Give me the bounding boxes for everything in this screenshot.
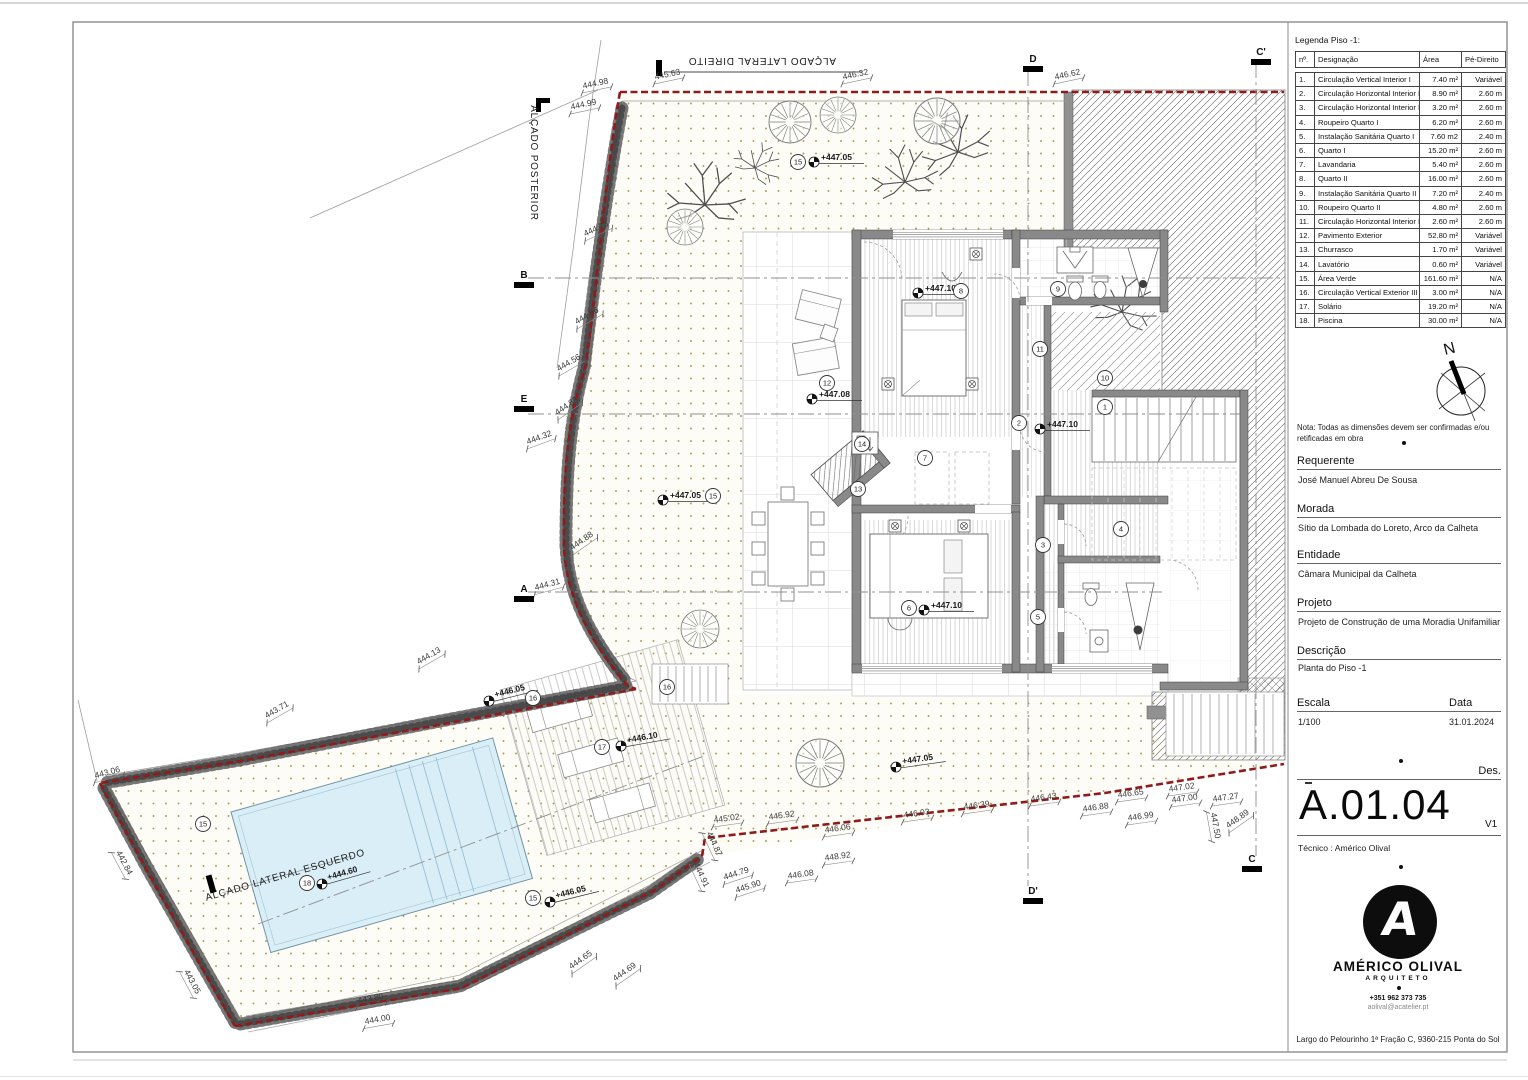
- rule: [1297, 779, 1501, 780]
- svg-text:+447.10: +447.10: [925, 283, 956, 293]
- dimension: 443.71: [259, 697, 296, 727]
- legend-row: 15.Área Verde161.60 m²N/A: [1295, 272, 1506, 286]
- data-label: Data: [1449, 697, 1472, 709]
- legend-header-area: Área: [1420, 51, 1462, 68]
- svg-text:3: 3: [1041, 541, 1045, 550]
- legend-cell: 4.80 m²: [1420, 201, 1462, 215]
- dimension: 446.88: [1078, 800, 1114, 820]
- legend-cell: Circulação Vertical Interior I: [1315, 72, 1420, 87]
- svg-text:4: 4: [1119, 525, 1123, 534]
- svg-text:14: 14: [858, 440, 866, 449]
- svg-text:18: 18: [303, 879, 311, 888]
- elevation-name-label: ALÇADO LATERAL DIREITO: [688, 55, 836, 66]
- legend-cell: 7.: [1295, 158, 1315, 172]
- legend-cell: Pavimento Exterior: [1315, 229, 1420, 243]
- legend-cell: 2.60 m²: [1420, 215, 1462, 229]
- svg-text:444.65: 444.65: [567, 948, 594, 971]
- legend-cell: N/A: [1462, 314, 1506, 328]
- svg-text:15: 15: [199, 820, 207, 829]
- svg-text:448.89: 448.89: [1224, 807, 1251, 830]
- number-circle: 6: [902, 601, 917, 616]
- svg-text:444.31: 444.31: [533, 576, 561, 592]
- legend-row: 8.Quarto II16.00 m²2.60 m: [1295, 172, 1506, 186]
- descricao-label: Descrição: [1297, 645, 1501, 660]
- dimension: 448.92: [820, 849, 856, 869]
- number-circle: 17: [595, 740, 610, 755]
- section-marker: C': [1251, 47, 1271, 65]
- legend-cell: 10.: [1295, 201, 1315, 215]
- legend-cell: 0.60 m²: [1420, 257, 1462, 271]
- svg-text:E: E: [521, 394, 528, 405]
- number-circle: 14: [855, 437, 870, 452]
- number-circle: 15: [791, 155, 806, 170]
- legend-cell: Variável: [1462, 229, 1506, 243]
- legend-cell: Área Verde: [1315, 272, 1420, 286]
- legend-cell: 30.00 m²: [1420, 314, 1462, 328]
- dimension: 447.27: [1208, 790, 1244, 810]
- svg-text:B: B: [520, 270, 527, 281]
- dimension: 447.50: [1203, 808, 1224, 844]
- legend-cell: Roupeiro Quarto I: [1315, 116, 1420, 130]
- escala-data-labels: Escala Data: [1297, 697, 1501, 712]
- svg-text:+447.05: +447.05: [821, 152, 852, 162]
- svg-text:+447.08: +447.08: [819, 389, 850, 399]
- legend-cell: 1.: [1295, 72, 1315, 87]
- legend-row: 17.Solário19.20 m²N/A: [1295, 300, 1506, 314]
- number-circle: 15: [526, 891, 541, 906]
- number-circle: 9: [1051, 282, 1066, 297]
- svg-text:15: 15: [794, 158, 802, 167]
- legend-row: 3.Circulação Horizontal Interior III3.20…: [1295, 101, 1506, 115]
- legend-cell: 2.60 m: [1462, 101, 1506, 115]
- legend-cell: 16.: [1295, 286, 1315, 300]
- legend-header-designation: Designação: [1315, 51, 1420, 68]
- section-marker: C: [1242, 854, 1262, 872]
- legend-cell: Circulação Horizontal Interior II: [1315, 87, 1420, 101]
- svg-text:13: 13: [854, 485, 862, 494]
- number-circle: 1: [1098, 400, 1113, 415]
- note-text: Nota: Todas as dimensões devem ser confi…: [1297, 423, 1497, 445]
- legend-cell: 7.20 m²: [1420, 187, 1462, 201]
- legend-row: 12.Pavimento Exterior52.80 m²Variável: [1295, 229, 1506, 243]
- legend-cell: Piscina: [1315, 314, 1420, 328]
- svg-text:+447.10: +447.10: [1047, 419, 1078, 429]
- legend-cell: 8.90 m²: [1420, 87, 1462, 101]
- requerente-value: José Manuel Abreu De Sousa: [1298, 475, 1502, 486]
- svg-text:2: 2: [1017, 419, 1021, 428]
- svg-text:443.71: 443.71: [263, 698, 291, 720]
- legend-cell: Variável: [1462, 243, 1506, 257]
- legend-cell: 2.40 m: [1462, 187, 1506, 201]
- number-circle: 5: [1031, 610, 1046, 625]
- architect-email: aolival@acatelier.pt: [1289, 1004, 1507, 1011]
- number-circle: 7: [918, 451, 933, 466]
- logo-monogram: A: [1359, 892, 1441, 946]
- svg-text:15: 15: [529, 894, 537, 903]
- legend-title: Legenda Piso -1:: [1295, 35, 1360, 45]
- legend-cell: 12.: [1295, 229, 1315, 243]
- descricao-value: Planta do Piso -1: [1298, 663, 1502, 674]
- legend-cell: 2.60 m: [1462, 116, 1506, 130]
- legend-row: 10.Roupeiro Quarto II4.80 m²2.60 m: [1295, 201, 1506, 215]
- svg-text:444.13: 444.13: [415, 644, 443, 666]
- title-block: Legenda Piso -1: nº. Designação Área Pé-…: [1289, 23, 1507, 1052]
- svg-text:444.91: 444.91: [692, 861, 712, 889]
- architect-logo: A: [1363, 885, 1437, 959]
- legend-cell: 15.20 m²: [1420, 144, 1462, 158]
- legend-cell: 2.60 m: [1462, 158, 1506, 172]
- svg-text:8: 8: [959, 287, 963, 296]
- morada-label: Morada: [1297, 503, 1501, 518]
- legend-row: 13.Churrasco1.70 m²Variável: [1295, 243, 1506, 257]
- legend-cell: 13.: [1295, 243, 1315, 257]
- svg-text:C: C: [1248, 854, 1255, 865]
- dimension: 446.62: [1050, 66, 1086, 88]
- architect-phone: +351 962 373 735: [1289, 995, 1507, 1002]
- svg-text:446.99: 446.99: [1127, 809, 1154, 823]
- legend-cell: Circulação Horizontal Interior IV: [1315, 215, 1420, 229]
- legend-cell: Quarto II: [1315, 172, 1420, 186]
- section-marker: B: [514, 270, 534, 288]
- data-value: 31.01.2024: [1449, 717, 1504, 728]
- escala-label: Escala: [1297, 697, 1330, 709]
- legend-cell: 19.20 m²: [1420, 300, 1462, 314]
- svg-text:10: 10: [1101, 374, 1109, 383]
- legend-cell: Solário: [1315, 300, 1420, 314]
- svg-text:11: 11: [1036, 345, 1044, 354]
- legend-cell: Churrasco: [1315, 243, 1420, 257]
- projeto-label: Projeto: [1297, 597, 1501, 612]
- legend-header-height: Pé-Direito: [1462, 51, 1506, 68]
- dimension: 444.98: [578, 75, 614, 97]
- sheet-code: A.01.04: [1299, 781, 1451, 829]
- floor-hall: [1020, 304, 1044, 497]
- svg-text:7: 7: [923, 454, 927, 463]
- svg-text:5: 5: [1036, 613, 1040, 622]
- tecnico-line: Técnico : Américo Olival: [1298, 843, 1390, 853]
- svg-text:+447.05: +447.05: [670, 490, 701, 500]
- dimension: 444.00: [360, 1011, 396, 1032]
- legend-cell: 7.60 m2: [1420, 130, 1462, 144]
- number-circle: 16: [660, 680, 675, 695]
- legend-cell: 2.60 m: [1462, 172, 1506, 186]
- dimension: 446.08: [783, 867, 819, 887]
- number-circle: 2: [1012, 416, 1027, 431]
- svg-text:C': C': [1256, 47, 1266, 58]
- svg-text:16: 16: [529, 694, 537, 703]
- svg-text:447.27: 447.27: [1212, 790, 1239, 804]
- legend-cell: 2.60 m: [1462, 87, 1506, 101]
- dimension: 448.89: [1220, 805, 1256, 837]
- legend-cell: 161.60 m²: [1420, 272, 1462, 286]
- legend-row: 1.Circulação Vertical Interior I7.40 m²V…: [1295, 72, 1506, 87]
- svg-text:D': D': [1028, 886, 1038, 897]
- number-circle: 3: [1036, 538, 1051, 553]
- legend-cell: 2.: [1295, 87, 1315, 101]
- svg-text:16: 16: [663, 683, 671, 692]
- legend-cell: N/A: [1462, 286, 1506, 300]
- legend-cell: 8.: [1295, 172, 1315, 186]
- number-circle: 11: [1033, 342, 1048, 357]
- legend-cell: 2.60 m: [1462, 201, 1506, 215]
- svg-text:9: 9: [1056, 285, 1060, 294]
- number-circle: 4: [1114, 522, 1129, 537]
- legend-cell: Variável: [1462, 72, 1506, 87]
- dimension: 444.31: [530, 575, 567, 598]
- legend-cell: 5.40 m²: [1420, 158, 1462, 172]
- dimension: 444.13: [411, 643, 448, 673]
- number-circle: 8: [954, 284, 969, 299]
- number-circle: 15: [706, 489, 721, 504]
- dimension: 445.90: [730, 876, 767, 901]
- legend-cell: Circulação Vertical Exterior III: [1315, 286, 1420, 300]
- legend-cell: 6.20 m²: [1420, 116, 1462, 130]
- legend-cell: 17.: [1295, 300, 1315, 314]
- dimension: 446.99: [1123, 809, 1159, 829]
- legend-row: 4.Roupeiro Quarto I6.20 m²2.60 m: [1295, 116, 1506, 130]
- entidade-label: Entidade: [1297, 549, 1501, 564]
- svg-text:446.08: 446.08: [787, 867, 814, 881]
- fold-mark-dot: [1402, 441, 1406, 445]
- legend-cell: 14.: [1295, 257, 1315, 271]
- rule: [1297, 835, 1501, 836]
- projeto-value: Projeto de Construção de uma Moradia Uni…: [1298, 617, 1502, 628]
- number-circle: 10: [1098, 371, 1113, 386]
- section-marker: A: [514, 584, 534, 602]
- legend-cell: Lavandaria: [1315, 158, 1420, 172]
- legend-cell: Instalação Sanitária Quarto I: [1315, 130, 1420, 144]
- section-marker: D: [1023, 54, 1043, 72]
- legend-cell: N/A: [1462, 300, 1506, 314]
- legend-cell: Variável: [1462, 257, 1506, 271]
- legend-cell: Lavatório: [1315, 257, 1420, 271]
- svg-text:444.32: 444.32: [525, 428, 553, 446]
- legend-cell: 4.: [1295, 116, 1315, 130]
- svg-text:A: A: [520, 584, 527, 595]
- legend-row: 16.Circulação Vertical Exterior III3.00 …: [1295, 286, 1506, 300]
- legend-cell: 3.20 m²: [1420, 101, 1462, 115]
- legend-cell: 5.: [1295, 130, 1315, 144]
- fold-mark-dot: [1397, 986, 1401, 990]
- legend-cell: 15.: [1295, 272, 1315, 286]
- svg-text:448.92: 448.92: [824, 849, 851, 863]
- svg-text:444.00: 444.00: [364, 1012, 392, 1026]
- legend-cell: 2.60 m: [1462, 144, 1506, 158]
- svg-text:447.00: 447.00: [1171, 791, 1198, 805]
- legend-cell: 18.: [1295, 314, 1315, 328]
- legend-row: 6.Quarto I15.20 m²2.60 m: [1295, 144, 1506, 158]
- fold-mark-dot: [1399, 759, 1403, 763]
- office-address: Largo do Pelourinho 1ª Fração C, 9360-21…: [1289, 1035, 1507, 1044]
- entidade-value: Câmara Municipal da Calheta: [1298, 569, 1502, 580]
- legend-cell: Instalação Sanitária Quarto II: [1315, 187, 1420, 201]
- legend-cell: 3.: [1295, 101, 1315, 115]
- legend-cell: 2.60 m: [1462, 215, 1506, 229]
- svg-text:15: 15: [709, 492, 717, 501]
- legend-row: 5.Instalação Sanitária Quarto I7.60 m22.…: [1295, 130, 1506, 144]
- legend-cell: 3.00 m²: [1420, 286, 1462, 300]
- legend-row: 2.Circulação Horizontal Interior II8.90 …: [1295, 87, 1506, 101]
- number-circle: 15: [196, 817, 211, 832]
- bed-quarto-1: [870, 534, 988, 630]
- legend-table: nº. Designação Área Pé-Direito 1.Circula…: [1295, 51, 1506, 328]
- north-label: N: [1442, 340, 1457, 359]
- dimension: 444.32: [521, 427, 558, 453]
- number-circle: 13: [851, 482, 866, 497]
- legend-cell: Circulação Horizontal Interior III: [1315, 101, 1420, 115]
- legend-cell: N/A: [1462, 272, 1506, 286]
- legend-cell: 11.: [1295, 215, 1315, 229]
- legend-row: 18.Piscina30.00 m²N/A: [1295, 314, 1506, 328]
- north-compass: N: [1409, 337, 1509, 437]
- architect-role: ARQUITETO: [1289, 975, 1507, 982]
- number-circle: 18: [300, 876, 315, 891]
- svg-text:444.79: 444.79: [722, 864, 750, 882]
- svg-text:D: D: [1029, 54, 1036, 65]
- legend-row: 14.Lavatório0.60 m²Variável: [1295, 257, 1506, 271]
- dimension: 444.65: [563, 946, 599, 978]
- legend-header-num: nº.: [1295, 51, 1315, 68]
- svg-text:6: 6: [907, 604, 911, 613]
- sheet-version: V1: [1485, 819, 1497, 830]
- number-circle: 16: [526, 691, 541, 706]
- svg-text:12: 12: [823, 379, 831, 388]
- svg-text:1: 1: [1103, 403, 1107, 412]
- svg-text:447.50: 447.50: [1209, 812, 1223, 840]
- section-marker: D': [1023, 886, 1043, 904]
- architect-name: AMÉRICO OLIVAL: [1289, 959, 1507, 974]
- floor-roupeiro-1: [1064, 504, 1160, 556]
- dimension: 447.00: [1167, 791, 1203, 811]
- legend-header-row: nº. Designação Área Pé-Direito: [1295, 51, 1506, 68]
- requerente-label: Requerente: [1297, 455, 1501, 470]
- dimension: 445.63: [650, 66, 686, 88]
- svg-text:444.69: 444.69: [611, 960, 638, 983]
- section-marker: E: [514, 394, 534, 412]
- elevation-name-label: ALÇADO POSTERIOR: [528, 105, 539, 221]
- drawing-sheet: 445.63444.98444.99446.32446.62444.73444.…: [0, 0, 1528, 1080]
- dimension: 444.99: [566, 96, 602, 118]
- svg-text:17: 17: [598, 743, 606, 752]
- legend-row: 7.Lavandaria5.40 m²2.60 m: [1295, 158, 1506, 172]
- svg-text:+447.10: +447.10: [931, 600, 962, 610]
- dimension: 446.32: [838, 66, 874, 88]
- legend-row: 11.Circulação Horizontal Interior IV2.60…: [1295, 215, 1506, 229]
- legend-row: 9.Instalação Sanitária Quarto II7.20 m²2…: [1295, 187, 1506, 201]
- fold-mark-dot: [1399, 865, 1403, 869]
- number-circle: 12: [820, 376, 835, 391]
- legend-cell: Roupeiro Quarto II: [1315, 201, 1420, 215]
- svg-text:446.88: 446.88: [1082, 800, 1109, 814]
- legend-cell: 52.80 m²: [1420, 229, 1462, 243]
- des-label: Des.: [1297, 765, 1501, 777]
- legend-cell: Quarto I: [1315, 144, 1420, 158]
- legend-cell: 6.: [1295, 144, 1315, 158]
- dimension: 444.69: [607, 958, 643, 990]
- legend-cell: 9.: [1295, 187, 1315, 201]
- legend-cell: 1.70 m²: [1420, 243, 1462, 257]
- morada-value: Sítio da Lombada do Loreto, Arco da Calh…: [1298, 523, 1502, 534]
- legend-cell: 7.40 m²: [1420, 72, 1462, 87]
- legend-cell: 2.40 m: [1462, 130, 1506, 144]
- legend-cell: 16.00 m²: [1420, 172, 1462, 186]
